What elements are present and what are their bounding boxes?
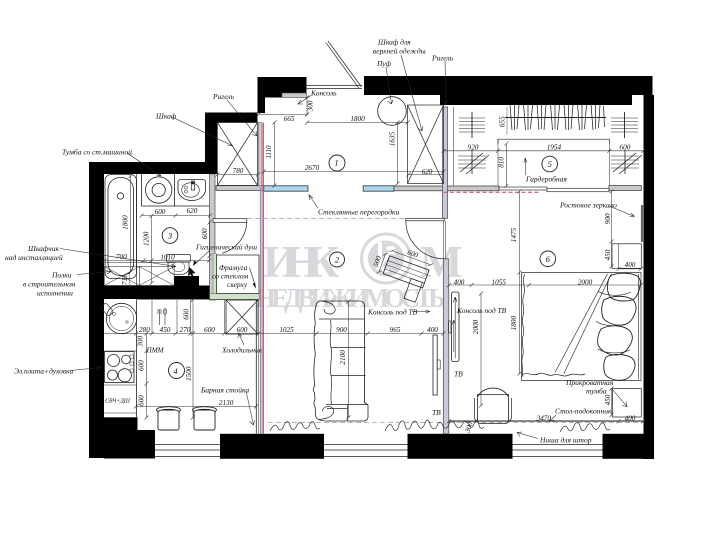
svg-text:1800: 1800 — [121, 215, 129, 230]
svg-text:1800: 1800 — [350, 115, 365, 123]
svg-text:Стол-подоконник: Стол-подоконник — [555, 407, 612, 416]
svg-text:2130: 2130 — [219, 399, 234, 407]
svg-text:450: 450 — [604, 249, 612, 260]
svg-text:270: 270 — [180, 326, 191, 334]
svg-text:1110: 1110 — [265, 145, 273, 159]
svg-text:Шкафчик: Шкафчик — [27, 244, 59, 253]
svg-text:Барная стойка: Барная стойка — [200, 386, 249, 395]
svg-text:верхней одежды: верхней одежды — [373, 47, 426, 56]
svg-text:600: 600 — [183, 309, 191, 320]
svg-text:1200: 1200 — [143, 231, 151, 246]
svg-text:3470: 3470 — [536, 414, 552, 422]
svg-text:Ригель: Ригель — [431, 54, 454, 63]
svg-text:Тумба со ст.машиной: Тумба со ст.машиной — [62, 148, 132, 157]
svg-text:1: 1 — [334, 158, 338, 168]
svg-text:СВЧ+ДШ: СВЧ+ДШ — [105, 399, 131, 405]
svg-text:3: 3 — [167, 231, 172, 241]
svg-text:400: 400 — [625, 414, 636, 422]
svg-text:Полки: Полки — [51, 271, 72, 280]
svg-text:в строительном: в строительном — [23, 280, 76, 289]
svg-text:400: 400 — [427, 326, 438, 334]
svg-text:сверху: сверху — [227, 280, 248, 289]
svg-text:тумба: тумба — [586, 387, 607, 396]
svg-text:711: 711 — [121, 275, 129, 285]
svg-text:5: 5 — [548, 159, 552, 169]
svg-text:1010: 1010 — [160, 253, 175, 261]
svg-text:450: 450 — [160, 326, 171, 334]
svg-text:665: 665 — [284, 115, 295, 123]
svg-text:исполнении: исполнении — [37, 289, 73, 298]
svg-text:400: 400 — [625, 261, 636, 269]
svg-text:ТВ: ТВ — [432, 408, 441, 417]
svg-text:2000: 2000 — [578, 278, 593, 286]
svg-text:400: 400 — [454, 278, 465, 286]
svg-text:300: 300 — [307, 100, 315, 112]
svg-text:780: 780 — [233, 167, 244, 175]
svg-text:920: 920 — [468, 143, 479, 151]
svg-text:900: 900 — [336, 326, 347, 334]
svg-text:Ригель: Ригель — [212, 92, 235, 101]
svg-text:700: 700 — [116, 253, 127, 261]
svg-text:810: 810 — [498, 157, 506, 168]
svg-text:600: 600 — [155, 208, 166, 216]
svg-text:600: 600 — [138, 395, 146, 406]
svg-text:2100: 2100 — [339, 350, 347, 365]
svg-text:Стеклянные перегородки: Стеклянные перегородки — [318, 208, 400, 217]
svg-text:Холодильник: Холодильник — [221, 346, 263, 355]
svg-text:6: 6 — [546, 254, 551, 264]
svg-text:620: 620 — [187, 207, 198, 215]
svg-text:Шкаф: Шкаф — [155, 112, 177, 121]
svg-text:620: 620 — [422, 168, 433, 176]
svg-text:655: 655 — [499, 116, 507, 127]
svg-text:965: 965 — [390, 326, 401, 334]
svg-text:600: 600 — [201, 228, 209, 239]
svg-text:1500: 1500 — [185, 366, 193, 381]
svg-text:280: 280 — [139, 326, 150, 334]
svg-text:1635: 1635 — [389, 131, 397, 146]
svg-text:300: 300 — [136, 336, 144, 348]
svg-text:ПММ: ПММ — [146, 347, 165, 355]
svg-text:над инсталляцией: над инсталляцией — [5, 253, 63, 262]
svg-text:900: 900 — [604, 213, 612, 224]
svg-text:Шкаф для: Шкаф для — [377, 38, 411, 47]
svg-text:1954: 1954 — [547, 143, 562, 151]
svg-text:Пуф: Пуф — [376, 59, 392, 68]
svg-text:Ростовое зеркало: Ростовое зеркало — [559, 201, 617, 210]
svg-text:Консоль под ТВ: Консоль под ТВ — [456, 306, 507, 315]
svg-text:Ниша для штор: Ниша для штор — [539, 436, 592, 445]
svg-text:1475: 1475 — [510, 227, 518, 242]
svg-text:ИНК: ИНК — [263, 237, 339, 287]
svg-text:ТВ: ТВ — [454, 370, 463, 379]
svg-text:1055: 1055 — [492, 278, 507, 286]
svg-text:НЕДВИЖИМОСТЬ: НЕДВИЖИМОСТЬ — [255, 283, 446, 313]
svg-text:1800: 1800 — [510, 316, 518, 331]
svg-text:Гардеробная: Гардеробная — [525, 175, 567, 184]
svg-text:1025: 1025 — [279, 326, 294, 334]
svg-text:Консоль под ТВ: Консоль под ТВ — [367, 308, 418, 317]
svg-text:2670: 2670 — [305, 164, 320, 172]
svg-text:600: 600 — [204, 326, 215, 334]
svg-text:600: 600 — [620, 143, 631, 151]
svg-text:450: 450 — [604, 394, 612, 405]
svg-text:2000: 2000 — [472, 319, 480, 334]
svg-text:Гигиенический душ: Гигиенический душ — [195, 243, 257, 252]
svg-text:Эл.плита+духовка: Эл.плита+духовка — [14, 367, 73, 376]
svg-text:600: 600 — [138, 360, 146, 371]
svg-text:Консоль: Консоль — [310, 89, 337, 98]
